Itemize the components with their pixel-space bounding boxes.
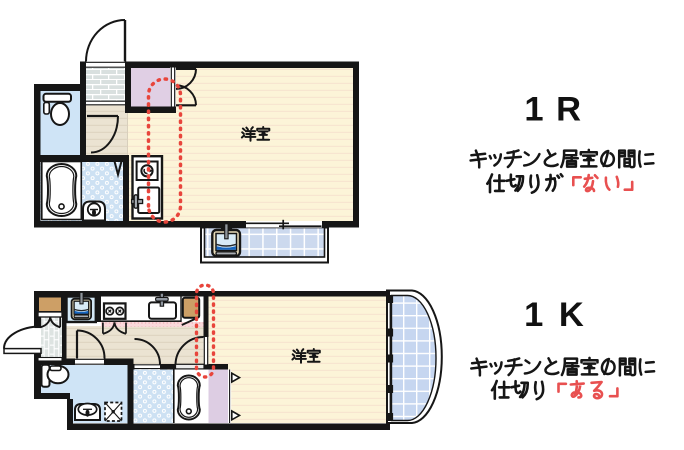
svg-text:1 R: 1 R: [524, 91, 582, 129]
svg-text:1 K: 1 K: [524, 296, 587, 334]
